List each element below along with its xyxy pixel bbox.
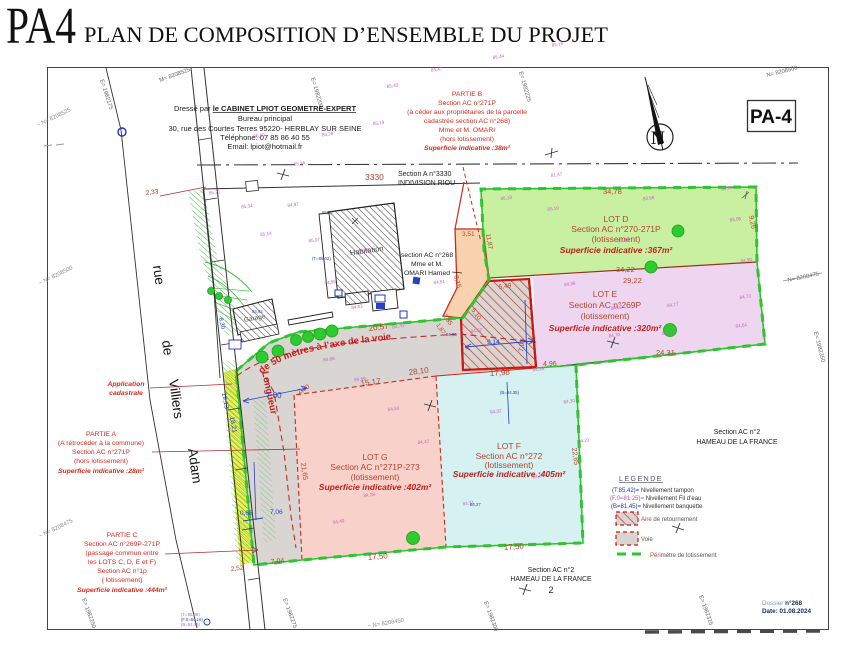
svg-text:Superficie indicative :444m²: Superficie indicative :444m²: [77, 587, 168, 594]
svg-text:3,51: 3,51: [462, 231, 475, 238]
svg-text:84,27: 84,27: [470, 502, 481, 507]
svg-text:Superficie indicative :28m²: Superficie indicative :28m²: [58, 468, 145, 475]
svg-text:rue: rue: [150, 264, 168, 285]
svg-text:(A rétrocéder à la commune): (A rétrocéder à la commune): [58, 440, 144, 447]
svg-text:PLAN DE COMPOSITION D’ENSEMBLE: PLAN DE COMPOSITION D’ENSEMBLE DU PROJET: [84, 22, 609, 47]
svg-text:17,50: 17,50: [367, 551, 388, 562]
svg-text:PARTIE B: PARTIE B: [452, 91, 483, 98]
svg-text:LEGENDE: LEGENDE: [619, 476, 663, 483]
svg-text:Section AC n°271P: Section AC n°271P: [438, 99, 496, 107]
svg-text:Section AC n°269P-271P: Section AC n°269P-271P: [84, 540, 160, 548]
svg-text:(B=84.45): (B=84.45): [181, 622, 201, 627]
svg-text:(B=84.35): (B=84.35): [500, 390, 520, 395]
svg-text:3330: 3330: [365, 172, 384, 182]
svg-text:les LOTS C, D, E et F): les LOTS C, D, E et F): [88, 559, 156, 566]
svg-text:2,52: 2,52: [230, 565, 244, 573]
svg-text:LOT E: LOT E: [593, 289, 618, 299]
svg-text:Section AC n°269P: Section AC n°269P: [569, 300, 642, 310]
svg-text:(lotissement): (lotissement): [351, 472, 400, 482]
svg-text:PARTIE C: PARTIE C: [107, 532, 138, 539]
svg-text:(lotissement): (lotissement): [592, 234, 641, 244]
svg-text:Superficie indicative :38m²: Superficie indicative :38m²: [424, 145, 511, 152]
svg-text:Section AC n°271P: Section AC n°271P: [72, 448, 130, 456]
svg-text:Téléphone: 07 85 86 40 55: Téléphone: 07 85 86 40 55: [220, 133, 310, 142]
svg-text:(passage commun entre: (passage commun entre: [85, 550, 159, 557]
svg-text:24,31: 24,31: [656, 348, 675, 357]
svg-text:HAMEAU DE LA FRANCE: HAMEAU DE LA FRANCE: [510, 576, 592, 583]
svg-text:(hors lotissement): (hors lotissement): [440, 136, 494, 143]
svg-text:Périmètre de lotissement: Périmètre de lotissement: [650, 553, 717, 559]
svg-text:17,98: 17,98: [490, 368, 511, 378]
svg-text:Section AC n°271P-273: Section AC n°271P-273: [330, 462, 420, 472]
svg-text:(B=81.45)= Nivellement banquet: (B=81.45)= Nivellement banquette: [611, 504, 703, 510]
svg-text:Superficie indicative :405m²: Superficie indicative :405m²: [453, 469, 567, 479]
svg-text:Dossier n°268: Dossier n°268: [762, 599, 802, 607]
svg-text:Mme et M. OMARI: Mme et M. OMARI: [439, 127, 495, 134]
svg-text:Mme et M.: Mme et M.: [411, 261, 443, 268]
svg-text:(T:85.42)= Nivellement tampon: (T:85.42)= Nivellement tampon: [612, 488, 694, 494]
svg-text:(F.0=81.25)= Nivellement Fil d: (F.0=81.25)= Nivellement Fil d’eau: [610, 496, 701, 502]
svg-text:N: N: [651, 128, 665, 149]
svg-text:Superficie indicative :402m²: Superficie indicative :402m²: [319, 482, 433, 492]
svg-text:4,96: 4,96: [543, 361, 557, 368]
svg-text:Section AC n°1p: Section AC n°1p: [97, 567, 147, 575]
svg-text:84,92: 84,92: [252, 309, 263, 314]
svg-text:( lotissement): ( lotissement): [102, 577, 143, 584]
svg-text:9,14: 9,14: [487, 339, 500, 346]
svg-text:LOT G: LOT G: [362, 452, 387, 462]
svg-text:85,12: 85,12: [322, 210, 333, 215]
svg-text:PA-4: PA-4: [750, 107, 792, 128]
svg-text:0,68: 0,68: [240, 510, 253, 517]
svg-text:Section AC n°2: Section AC n°2: [714, 428, 761, 436]
svg-text:2: 2: [548, 585, 553, 595]
svg-text:cadastrée section AC n°268): cadastrée section AC n°268): [424, 117, 510, 125]
svg-text:cadastrale: cadastrale: [109, 390, 143, 397]
svg-text:LOT F: LOT F: [497, 441, 521, 451]
svg-text:Date: 01.08.2024: Date: 01.08.2024: [762, 608, 812, 615]
svg-text:7,00: 7,00: [266, 391, 282, 400]
svg-text:(hors lotissement): (hors lotissement): [74, 458, 128, 465]
svg-text:84,56: 84,56: [446, 332, 457, 337]
svg-text:34,78: 34,78: [603, 187, 622, 196]
svg-text:INDIVISION RIOU: INDIVISION RIOU: [398, 180, 455, 187]
svg-text:PA4: PA4: [6, 0, 76, 55]
svg-text:(T=85.02): (T=85.02): [312, 256, 331, 261]
svg-text:de: de: [159, 339, 176, 356]
svg-text:7,04: 7,04: [270, 558, 284, 566]
svg-text:Aire de retournement: Aire de retournement: [641, 517, 698, 523]
svg-text:OMARI Hamed: OMARI Hamed: [404, 270, 450, 277]
svg-text:Superficie indicative :320m²: Superficie indicative :320m²: [549, 323, 663, 333]
svg-text:PARTIE A: PARTIE A: [86, 431, 116, 438]
svg-text:Section AC n°2: Section AC n°2: [528, 566, 575, 574]
svg-text:Application: Application: [106, 381, 144, 388]
svg-text:HAMEAU DE LA FRANCE: HAMEAU DE LA FRANCE: [696, 439, 778, 446]
svg-text:Section A n°3330: Section A n°3330: [398, 170, 452, 178]
svg-text:Email: lpiot@hotmail.fr: Email: lpiot@hotmail.fr: [227, 142, 303, 151]
svg-text:(à céder aux propriétaires de: (à céder aux propriétaires de la parcell…: [407, 109, 527, 116]
svg-text:Superficie indicative :367m²: Superficie indicative :367m²: [560, 245, 674, 255]
svg-text:29,22: 29,22: [623, 276, 642, 285]
svg-text:Section AC n°270-271P: Section AC n°270-271P: [571, 224, 661, 234]
svg-text:7,06: 7,06: [270, 509, 283, 516]
svg-text:(lotissement): (lotissement): [581, 311, 630, 321]
svg-text:LOT D: LOT D: [604, 214, 629, 224]
svg-text:17,50: 17,50: [504, 542, 525, 552]
svg-text:Voie: Voie: [641, 537, 653, 543]
svg-text:Dressé par le CABINET LPIOT G: Dressé par le CABINET LPIOT GEOMETRE-EXP…: [174, 104, 357, 113]
svg-text:Bureau principal: Bureau principal: [238, 114, 293, 123]
svg-text:section AC n°268: section AC n°268: [401, 251, 453, 259]
svg-text:34,22: 34,22: [616, 265, 635, 274]
